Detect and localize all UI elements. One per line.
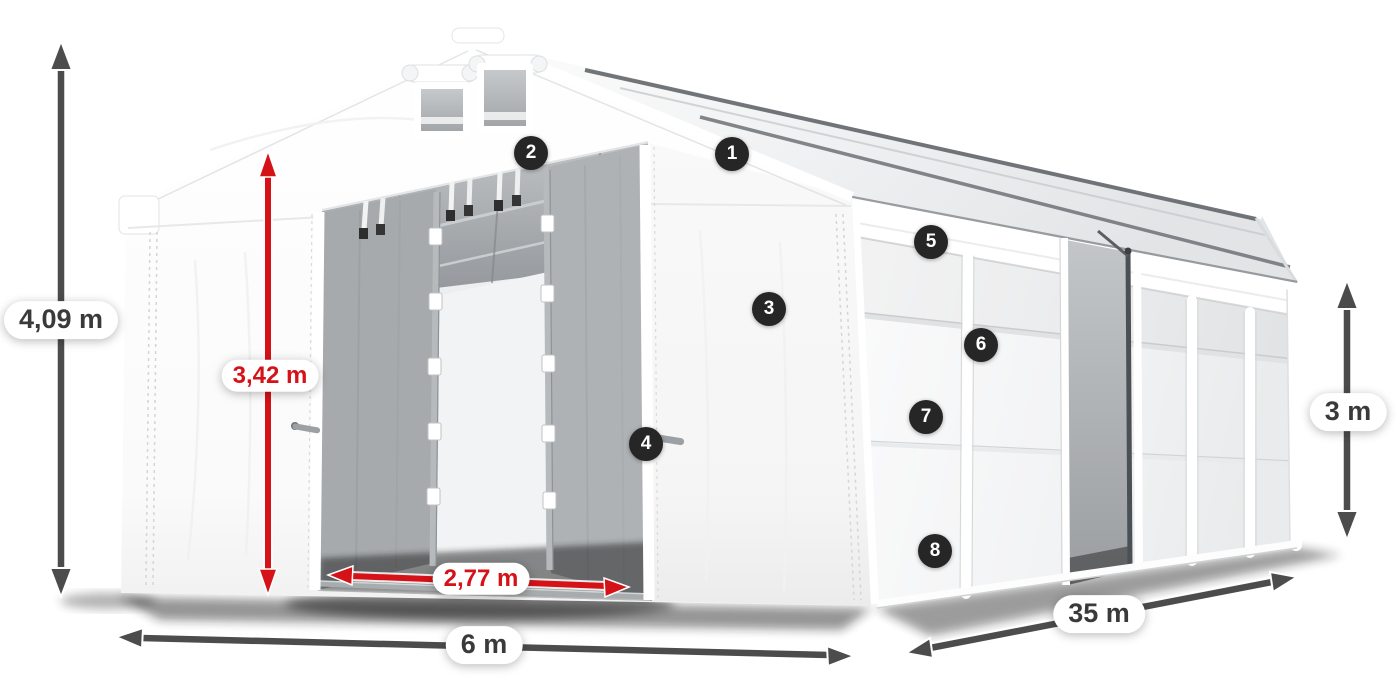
left-door-leaf xyxy=(318,189,436,590)
callout-badge-1: 1 xyxy=(715,137,749,171)
callout-number: 6 xyxy=(976,334,987,356)
side-door-pole xyxy=(1128,250,1130,568)
callout-badge-5: 5 xyxy=(914,225,948,259)
callout-badge-3: 3 xyxy=(752,292,786,326)
callout-number: 8 xyxy=(930,540,941,562)
side-door-opening xyxy=(1060,231,1139,585)
back-corner-post xyxy=(1293,290,1296,545)
callout-number: 4 xyxy=(641,433,652,455)
dimension-value: 4,09 m xyxy=(19,304,103,334)
dimension-value: 2,77 m xyxy=(444,565,519,592)
dimension-label-width: 6 m xyxy=(446,626,523,664)
dimension-value: 6 m xyxy=(461,629,508,659)
right-door-leaf xyxy=(548,144,652,601)
dimension-label-inner-height: 3,42 m xyxy=(222,360,319,392)
callout-badge-8: 8 xyxy=(918,534,952,568)
front-door-interior xyxy=(318,143,652,601)
dimension-label-door-width: 2,77 m xyxy=(433,563,530,595)
callout-number: 1 xyxy=(727,143,738,165)
dimension-label-length: 35 m xyxy=(1053,595,1145,633)
callout-number: 5 xyxy=(926,231,937,253)
callout-badge-7: 7 xyxy=(909,400,943,434)
callout-number: 3 xyxy=(764,298,775,320)
dimension-value: 3,42 m xyxy=(233,362,308,389)
callout-badge-4: 4 xyxy=(629,427,663,461)
door-jamb xyxy=(315,212,319,590)
callout-number: 2 xyxy=(526,142,537,164)
ridge-cap xyxy=(452,28,504,43)
tent-dimension-diagram: 4,09 m 3,42 m 2,77 m 6 m 35 m 3 m 1 2 3 … xyxy=(0,0,1400,700)
dimension-label-side-height: 3 m xyxy=(1310,393,1387,431)
dimension-value: 3 m xyxy=(1325,396,1372,426)
callout-badge-6: 6 xyxy=(964,328,998,362)
callout-number: 7 xyxy=(921,406,932,428)
dimension-value: 35 m xyxy=(1068,598,1130,628)
callout-badge-2: 2 xyxy=(514,136,548,170)
tent-illustration xyxy=(0,0,1400,700)
dimension-label-total-height: 4,09 m xyxy=(4,301,118,339)
door-jamb xyxy=(645,145,649,600)
